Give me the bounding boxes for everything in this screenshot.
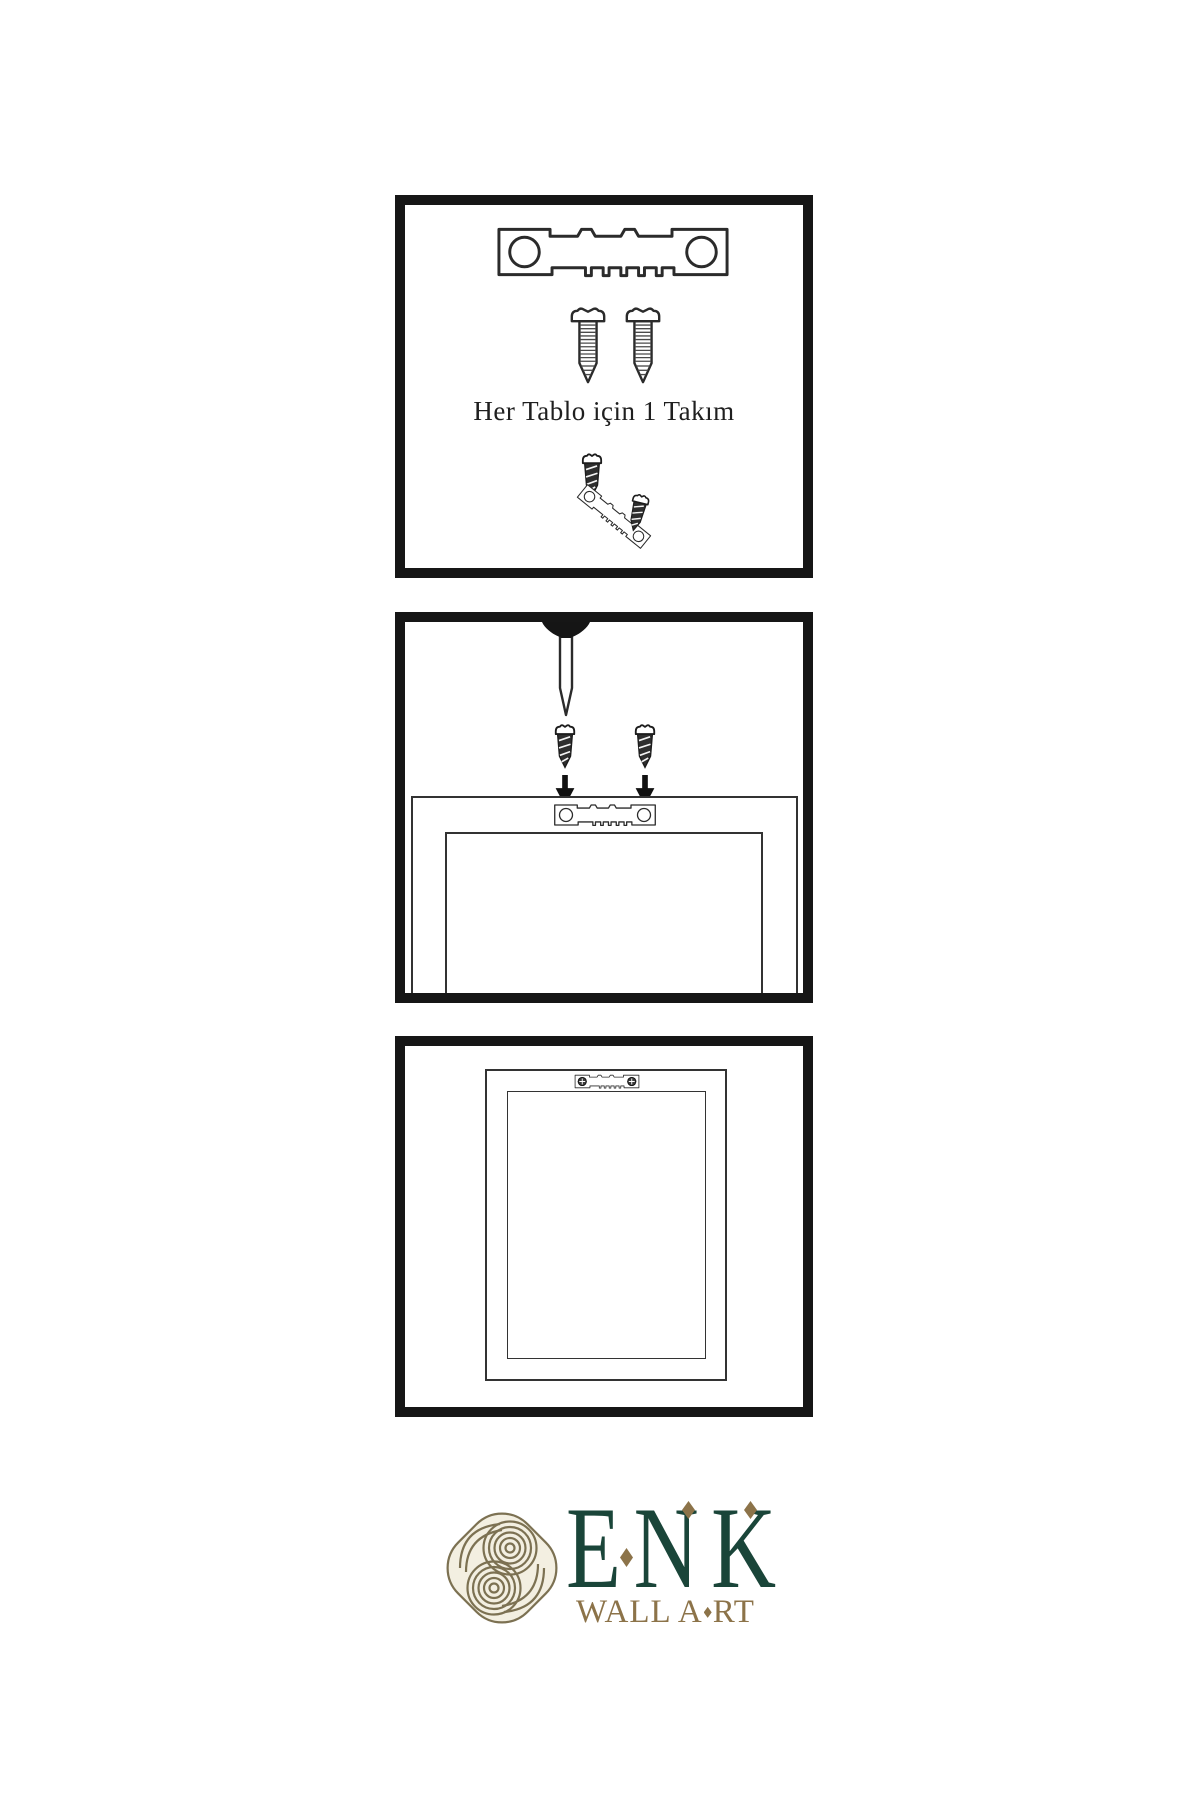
brand-wordmark: ENK xyxy=(566,1490,789,1607)
step-3-panel xyxy=(395,1036,813,1417)
tagline-text-left: WALL A xyxy=(576,1594,703,1630)
screw-icon xyxy=(568,306,608,386)
dark-screw-icon xyxy=(553,723,577,771)
frame-back-inner-edge xyxy=(445,832,763,993)
phillips-screw-icon xyxy=(628,1077,636,1085)
wall-nail-icon xyxy=(542,622,590,722)
frame-back-inner-edge xyxy=(507,1091,706,1359)
step-2-panel xyxy=(395,612,813,1003)
screw-icon xyxy=(623,306,663,386)
diamond-accent-icon xyxy=(704,1607,712,1618)
mounted-hanger-icon xyxy=(574,1074,640,1089)
dark-screw-icon xyxy=(633,723,657,771)
step-1-panel: Her Tablo için 1 Takım xyxy=(395,195,813,578)
phillips-screw-icon xyxy=(578,1077,586,1085)
knot-emblem-icon xyxy=(438,1502,566,1634)
tagline-text-right: RT xyxy=(713,1594,755,1630)
page: Her Tablo için 1 Takım ENK WALL ART xyxy=(0,0,1200,1800)
sawtooth-hanger-icon xyxy=(495,225,731,279)
brand-tagline: WALL ART xyxy=(576,1596,755,1629)
kit-caption: Her Tablo için 1 Takım xyxy=(405,396,803,427)
dark-screw-icon xyxy=(623,491,651,535)
sawtooth-hanger-icon xyxy=(553,803,657,827)
